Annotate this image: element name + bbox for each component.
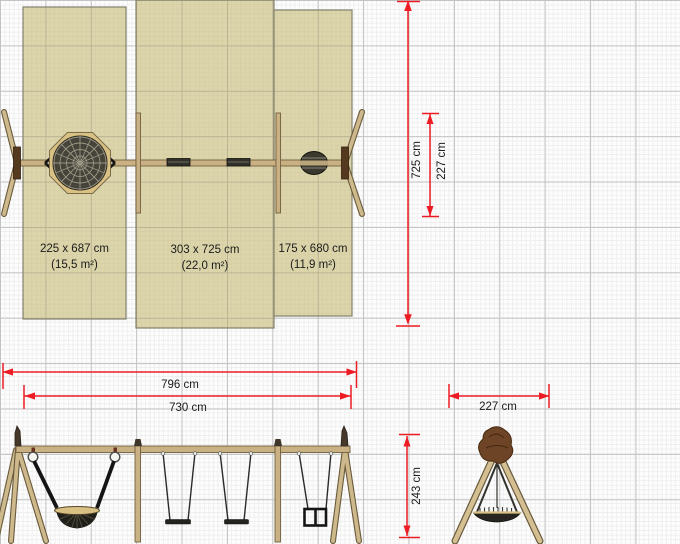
overall-length-label: 796 cm <box>161 379 199 391</box>
front-elevation <box>0 426 359 542</box>
plan-left-apex <box>14 147 21 179</box>
plan-middle-post-2 <box>276 113 281 213</box>
zone-1-label: 225 x 687 cm (15,5 m²) <box>23 241 126 273</box>
zone-2-size: 303 x 725 cm <box>136 242 274 258</box>
front-swing-1 <box>161 452 197 524</box>
zone-2-label: 303 x 725 cm (22,0 m²) <box>136 242 274 274</box>
front-toddler-swing <box>297 452 333 526</box>
front-post-1 <box>135 446 141 542</box>
zone-height-label: 725 cm <box>411 141 423 179</box>
frame-depth-side-label: 227 cm <box>479 401 517 413</box>
front-beam <box>16 446 350 453</box>
zone-1-size: 225 x 687 cm <box>23 241 126 257</box>
beam-length-label: 730 cm <box>169 402 207 414</box>
zone-3-label: 175 x 680 cm (11,9 m²) <box>274 241 352 273</box>
front-swing-2 <box>218 452 253 524</box>
side-elevation <box>455 427 540 541</box>
frame-depth-plan-label: 227 cm <box>436 142 448 180</box>
front-left-aframe <box>0 449 46 541</box>
front-nest-swing <box>28 448 120 529</box>
front-right-finial <box>341 426 348 446</box>
dimension-drawing: 225 x 687 cm (15,5 m²) 303 x 725 cm (22,… <box>0 0 680 544</box>
plan-view <box>4 0 362 328</box>
front-post-2-cap <box>274 439 282 446</box>
plan-toddler-seat <box>300 152 328 175</box>
zone-3-size: 175 x 680 cm <box>274 241 352 257</box>
front-post-1-cap <box>134 439 142 446</box>
plan-right-apex <box>342 147 349 179</box>
plan-middle-post-1 <box>136 113 141 213</box>
zone-1-area: (15,5 m²) <box>23 257 126 273</box>
front-post-2 <box>275 446 281 542</box>
zone-3-area: (11,9 m²) <box>274 257 352 273</box>
frame-height-label: 243 cm <box>411 467 423 505</box>
front-left-finial <box>15 426 21 446</box>
front-right-aframe <box>333 449 359 541</box>
zone-2-area: (22,0 m²) <box>136 258 274 274</box>
